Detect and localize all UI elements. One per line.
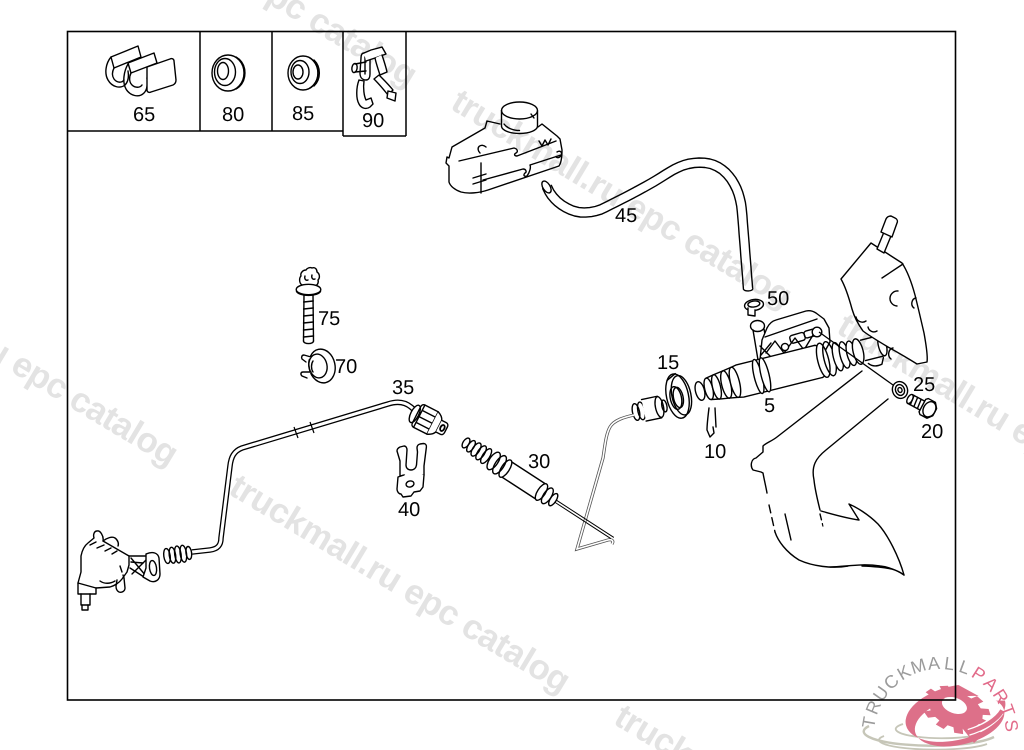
svg-text:65: 65 xyxy=(133,104,155,126)
svg-text:85: 85 xyxy=(292,103,314,125)
svg-text:10: 10 xyxy=(704,441,726,463)
svg-text:25: 25 xyxy=(913,374,935,396)
svg-text:90: 90 xyxy=(362,110,384,132)
svg-text:A: A xyxy=(927,653,941,674)
svg-text:15: 15 xyxy=(657,352,679,374)
svg-text:80: 80 xyxy=(222,104,244,126)
svg-text:70: 70 xyxy=(335,356,357,378)
svg-text:50: 50 xyxy=(767,288,789,310)
svg-text:45: 45 xyxy=(615,205,637,227)
svg-text:20: 20 xyxy=(921,421,943,443)
svg-text:35: 35 xyxy=(392,377,414,399)
svg-text:75: 75 xyxy=(318,308,340,330)
svg-text:30: 30 xyxy=(528,451,550,473)
svg-text:40: 40 xyxy=(398,499,420,521)
svg-text:5: 5 xyxy=(764,395,775,417)
